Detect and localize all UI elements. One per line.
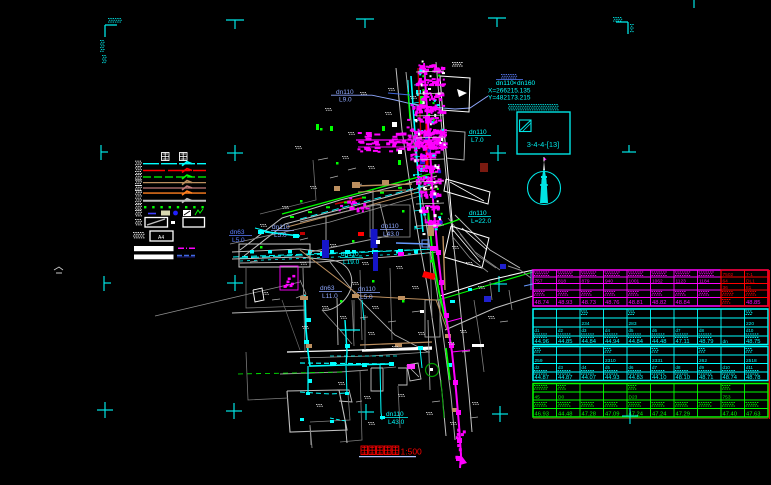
svg-text:L19.0: L19.0 — [343, 259, 360, 266]
svg-text:48.85: 48.85 — [746, 300, 761, 306]
svg-text:1062: 1062 — [652, 279, 663, 285]
svg-text:64: 64 — [723, 279, 729, 285]
svg-text:48.81: 48.81 — [629, 300, 644, 306]
svg-text:DL1: DL1 — [746, 279, 755, 285]
svg-text:dn110: dn110 — [469, 129, 487, 136]
svg-text:d4: d4 — [605, 328, 610, 333]
svg-text:47.11: 47.11 — [676, 339, 690, 345]
svg-text:dn110: dn110 — [272, 224, 290, 231]
svg-text:879: 879 — [582, 279, 590, 285]
svg-text:46.93: 46.93 — [535, 412, 550, 418]
svg-text:44.84: 44.84 — [629, 339, 644, 345]
svg-text:44.94: 44.94 — [605, 339, 620, 345]
svg-text:48.75: 48.75 — [746, 339, 761, 345]
svg-text:d7: d7 — [652, 365, 657, 370]
svg-text:L5.0: L5.0 — [360, 294, 373, 301]
svg-text:d10: d10 — [723, 365, 731, 370]
svg-text:L43.0: L43.0 — [388, 419, 405, 426]
svg-text:283: 283 — [629, 321, 637, 327]
svg-text:47.40: 47.40 — [723, 412, 738, 418]
svg-text:dn110: dn110 — [496, 80, 514, 87]
svg-text:47.24: 47.24 — [652, 412, 667, 418]
svg-text:7-1: 7-1 — [746, 272, 753, 278]
svg-text:Y=482173.215: Y=482173.215 — [488, 95, 531, 102]
svg-text:44.48: 44.48 — [652, 339, 667, 345]
svg-text:48.84: 48.84 — [676, 300, 691, 306]
svg-text:259: 259 — [535, 358, 543, 364]
svg-text:220: 220 — [746, 321, 754, 327]
svg-text:D0: D0 — [558, 395, 564, 401]
svg-text:d1: d1 — [535, 328, 540, 333]
svg-text:81: 81 — [746, 285, 752, 291]
svg-text:47.24: 47.24 — [629, 412, 644, 418]
svg-text:2310: 2310 — [605, 358, 616, 364]
svg-text:262: 262 — [699, 358, 707, 364]
svg-text:3-4-4-[13]: 3-4-4-[13] — [527, 140, 560, 149]
svg-text:dn160: dn160 — [517, 80, 535, 87]
svg-text:44.83: 44.83 — [629, 375, 644, 381]
svg-text:dn110: dn110 — [386, 411, 404, 418]
svg-text:L9.0: L9.0 — [339, 97, 352, 104]
svg-text:48.73: 48.73 — [582, 300, 597, 306]
svg-text:1:500: 1:500 — [401, 447, 423, 457]
svg-text:1184: 1184 — [699, 279, 710, 285]
svg-text:d3: d3 — [582, 328, 587, 333]
svg-text:48.74: 48.74 — [723, 375, 738, 381]
svg-text:48.76: 48.76 — [605, 300, 620, 306]
svg-text:d7: d7 — [676, 328, 681, 333]
svg-text:dn63: dn63 — [230, 229, 245, 236]
svg-text:44.10: 44.10 — [652, 375, 667, 381]
svg-text:757: 757 — [535, 279, 543, 285]
svg-text:d8: d8 — [676, 365, 681, 370]
svg-text:47.63: 47.63 — [746, 412, 761, 418]
svg-text:7502: 7502 — [723, 272, 734, 278]
svg-text:X=266215.135: X=266215.135 — [488, 88, 531, 95]
svg-text:d2: d2 — [535, 365, 540, 370]
svg-text:234: 234 — [582, 321, 590, 327]
svg-text:44.84: 44.84 — [582, 339, 597, 345]
svg-text:dn110: dn110 — [469, 210, 487, 217]
svg-text:44.96: 44.96 — [535, 339, 550, 345]
svg-text:940: 940 — [605, 279, 613, 285]
svg-text:44.48: 44.48 — [558, 412, 573, 418]
svg-text:36: 36 — [723, 285, 729, 291]
svg-text:48.78: 48.78 — [746, 375, 761, 381]
svg-text:d2: d2 — [558, 328, 563, 333]
svg-text:45: 45 — [535, 395, 541, 401]
svg-text:L43.0: L43.0 — [383, 231, 400, 238]
svg-text:48.93: 48.93 — [558, 300, 573, 306]
svg-text:D23: D23 — [629, 395, 638, 401]
svg-text:dn110: dn110 — [341, 251, 359, 258]
svg-text:dn110: dn110 — [358, 286, 376, 293]
svg-text:47.09: 47.09 — [605, 412, 620, 418]
svg-text:48.74: 48.74 — [535, 300, 550, 306]
svg-text:2518: 2518 — [746, 358, 757, 364]
svg-text:d6: d6 — [629, 365, 634, 370]
svg-text:48.79: 48.79 — [699, 339, 714, 345]
svg-text:44.87: 44.87 — [535, 375, 550, 381]
svg-text:44.85: 44.85 — [558, 339, 573, 345]
svg-text:753: 753 — [723, 395, 731, 401]
svg-text:47.29: 47.29 — [676, 412, 691, 418]
svg-text:d8: d8 — [699, 328, 704, 333]
svg-text:d4: d4 — [582, 365, 587, 370]
svg-text:L5.0: L5.0 — [232, 237, 245, 244]
svg-text:48.71: 48.71 — [699, 375, 714, 381]
svg-text:L11.0: L11.0 — [322, 293, 338, 300]
svg-text:44.93: 44.93 — [605, 375, 620, 381]
svg-text:A4: A4 — [158, 235, 164, 241]
svg-text:dn: dn — [723, 339, 729, 345]
svg-text:1001: 1001 — [629, 279, 640, 285]
svg-text:48.10: 48.10 — [676, 375, 691, 381]
svg-text:d3: d3 — [558, 365, 563, 370]
svg-text:d10: d10 — [746, 328, 754, 333]
svg-text:d6: d6 — [652, 328, 657, 333]
svg-text:48.82: 48.82 — [652, 300, 667, 306]
svg-text:d5: d5 — [605, 365, 610, 370]
svg-text:47.28: 47.28 — [582, 412, 597, 418]
svg-text:d11: d11 — [746, 365, 754, 370]
svg-text:L7.0: L7.0 — [471, 137, 484, 144]
svg-text:L5.0: L5.0 — [274, 232, 287, 239]
svg-text:d5: d5 — [629, 328, 634, 333]
svg-text:1123: 1123 — [676, 279, 687, 285]
svg-text:d9: d9 — [699, 365, 704, 370]
svg-text:44.07: 44.07 — [582, 375, 597, 381]
svg-text:L=22.0: L=22.0 — [471, 218, 491, 225]
svg-text:dn63: dn63 — [320, 285, 335, 292]
svg-text:dn110: dn110 — [381, 223, 399, 230]
svg-text:818: 818 — [558, 279, 566, 285]
svg-text:44.87: 44.87 — [558, 375, 573, 381]
svg-text:2331: 2331 — [652, 358, 663, 364]
